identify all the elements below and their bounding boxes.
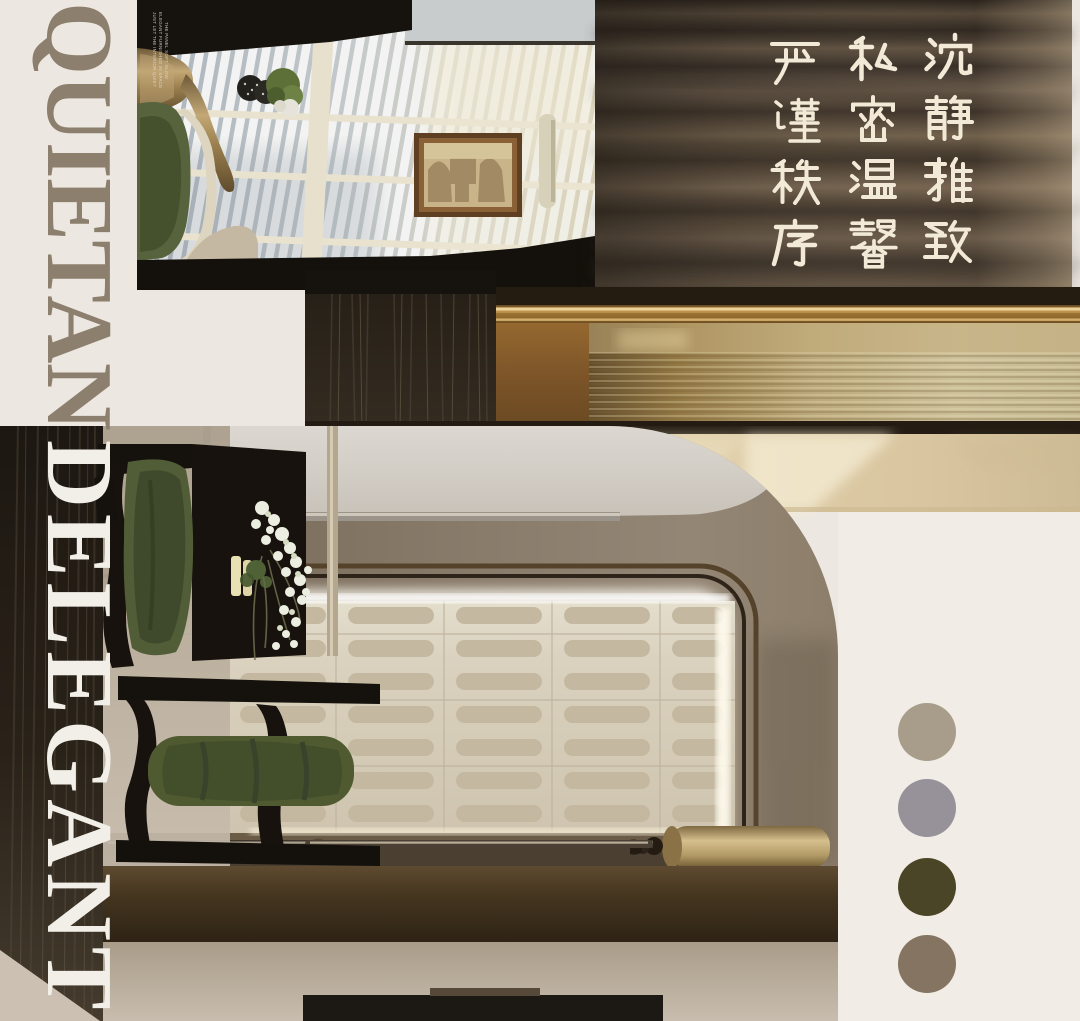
svg-text:JUST LET THE INTERIOR QUIET: JUST LET THE INTERIOR QUIET bbox=[152, 12, 157, 87]
svg-text:ELEGANT FURNISHED IN SPACE: ELEGANT FURNISHED IN SPACE bbox=[158, 12, 163, 88]
svg-text:THE PANEL SOFT GLOW: THE PANEL SOFT GLOW bbox=[164, 22, 169, 80]
svg-text:QUIETAN: QUIETAN bbox=[27, 2, 131, 430]
svg-text:DELEGANT: DELEGANT bbox=[27, 440, 131, 1016]
